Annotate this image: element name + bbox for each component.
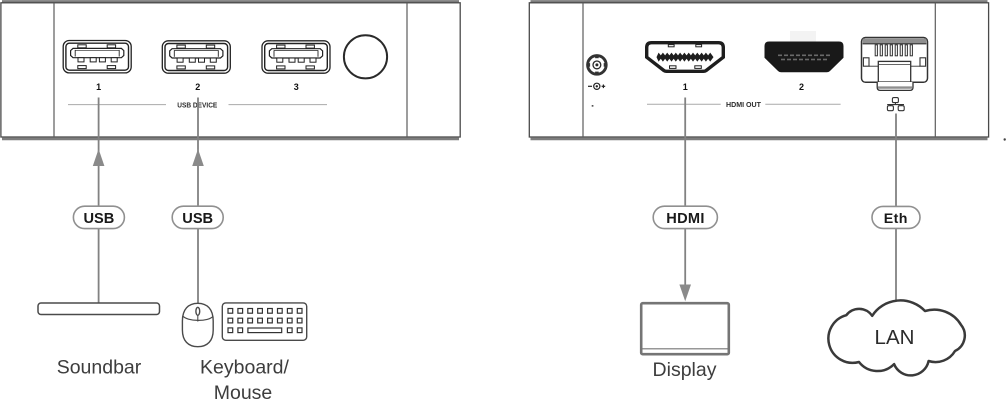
svg-text:3: 3: [294, 82, 299, 92]
svg-text:HDMI OUT: HDMI OUT: [726, 100, 761, 109]
svg-text:2: 2: [195, 82, 200, 92]
svg-text:LAN: LAN: [875, 326, 915, 349]
svg-text:USB: USB: [182, 211, 213, 227]
svg-text:USB: USB: [83, 211, 114, 227]
svg-text:Eth: Eth: [884, 211, 908, 227]
svg-text:1: 1: [96, 82, 101, 92]
svg-text:Mouse: Mouse: [214, 382, 273, 400]
svg-text:2: 2: [799, 82, 804, 92]
svg-text:Keyboard/: Keyboard/: [200, 357, 289, 379]
svg-text:1: 1: [683, 82, 688, 92]
svg-text:Soundbar: Soundbar: [57, 357, 142, 379]
svg-text:HDMI: HDMI: [666, 211, 705, 227]
svg-text:Display: Display: [653, 359, 717, 381]
